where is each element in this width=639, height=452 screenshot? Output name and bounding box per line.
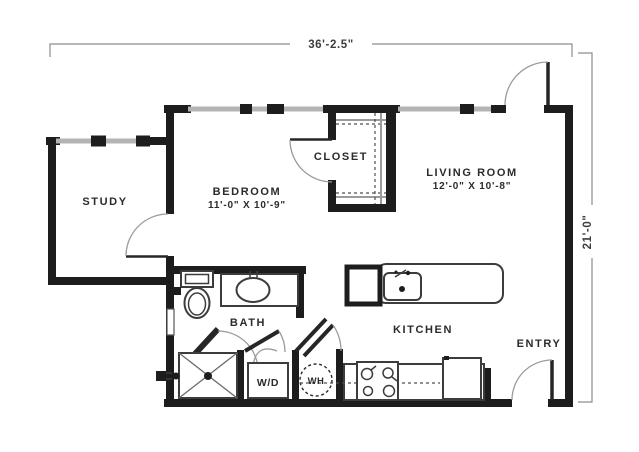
plumbing-icon — [174, 287, 181, 295]
room-size-bedroom: 11'-0" X 10'-9" — [208, 200, 286, 211]
room-label-entry: ENTRY — [517, 338, 562, 350]
wall-entry-stub — [484, 368, 491, 407]
wall-closet-left — [328, 113, 336, 140]
wall-closet-bottom — [328, 204, 396, 212]
window-mullion — [136, 136, 150, 147]
wall-niche — [167, 309, 174, 335]
wall-left — [166, 105, 174, 214]
water-heater-door — [296, 319, 341, 356]
room-label-study: STUDY — [82, 196, 127, 208]
wall-closet-right — [386, 105, 396, 212]
dimension-right: 21'-0" — [578, 53, 594, 402]
label-water-heater: WH — [308, 376, 325, 387]
refrigerator — [443, 356, 481, 399]
room-label-bedroom: BEDROOM — [213, 186, 282, 198]
window-mullion — [460, 104, 474, 114]
patio-door — [505, 62, 548, 105]
wall-right — [565, 105, 573, 407]
study-door — [126, 214, 168, 257]
dishwasher — [347, 267, 380, 304]
window-bedroom — [188, 107, 325, 112]
laundry-door — [245, 331, 285, 366]
window-mullion — [91, 136, 106, 147]
wall-segment — [548, 399, 573, 407]
label-washer-dryer: W/D — [257, 377, 279, 389]
room-label-bath: BATH — [230, 317, 266, 329]
shower-head-icon — [173, 373, 180, 380]
walls — [46, 104, 573, 407]
dimension-right-label: 21'-0" — [582, 215, 594, 250]
shower-valve-icon — [156, 371, 166, 381]
floor-plan-canvas: 36'-2.5" 21'-0" — [0, 0, 639, 452]
room-label-kitchen: KITCHEN — [393, 324, 453, 336]
window-mullion — [267, 104, 284, 114]
vanity-sink — [221, 271, 298, 306]
wall-wh-left — [292, 350, 299, 407]
entry-door — [512, 360, 552, 400]
wall-study-bottom — [48, 277, 174, 285]
room-label-closet: CLOSET — [314, 151, 368, 163]
wall-segment — [148, 137, 174, 145]
kitchen-island — [347, 264, 503, 304]
stove — [357, 362, 398, 400]
window-mullion — [240, 104, 252, 114]
wall-wd-left — [237, 350, 244, 407]
dimension-top-label: 36'-2.5" — [308, 39, 354, 51]
room-label-living-room: LIVING ROOM — [426, 167, 518, 179]
window-living — [398, 107, 494, 112]
toilet — [181, 271, 213, 318]
floor-plan: 36'-2.5" 21'-0" — [0, 0, 639, 452]
island-sink — [384, 270, 421, 300]
wall-segment — [491, 105, 506, 113]
room-size-living-room: 12'-0" X 10'-8" — [433, 181, 512, 192]
wall-wh-right — [336, 349, 343, 407]
dimension-top: 36'-2.5" — [50, 39, 572, 57]
wall-study-left — [48, 137, 56, 285]
